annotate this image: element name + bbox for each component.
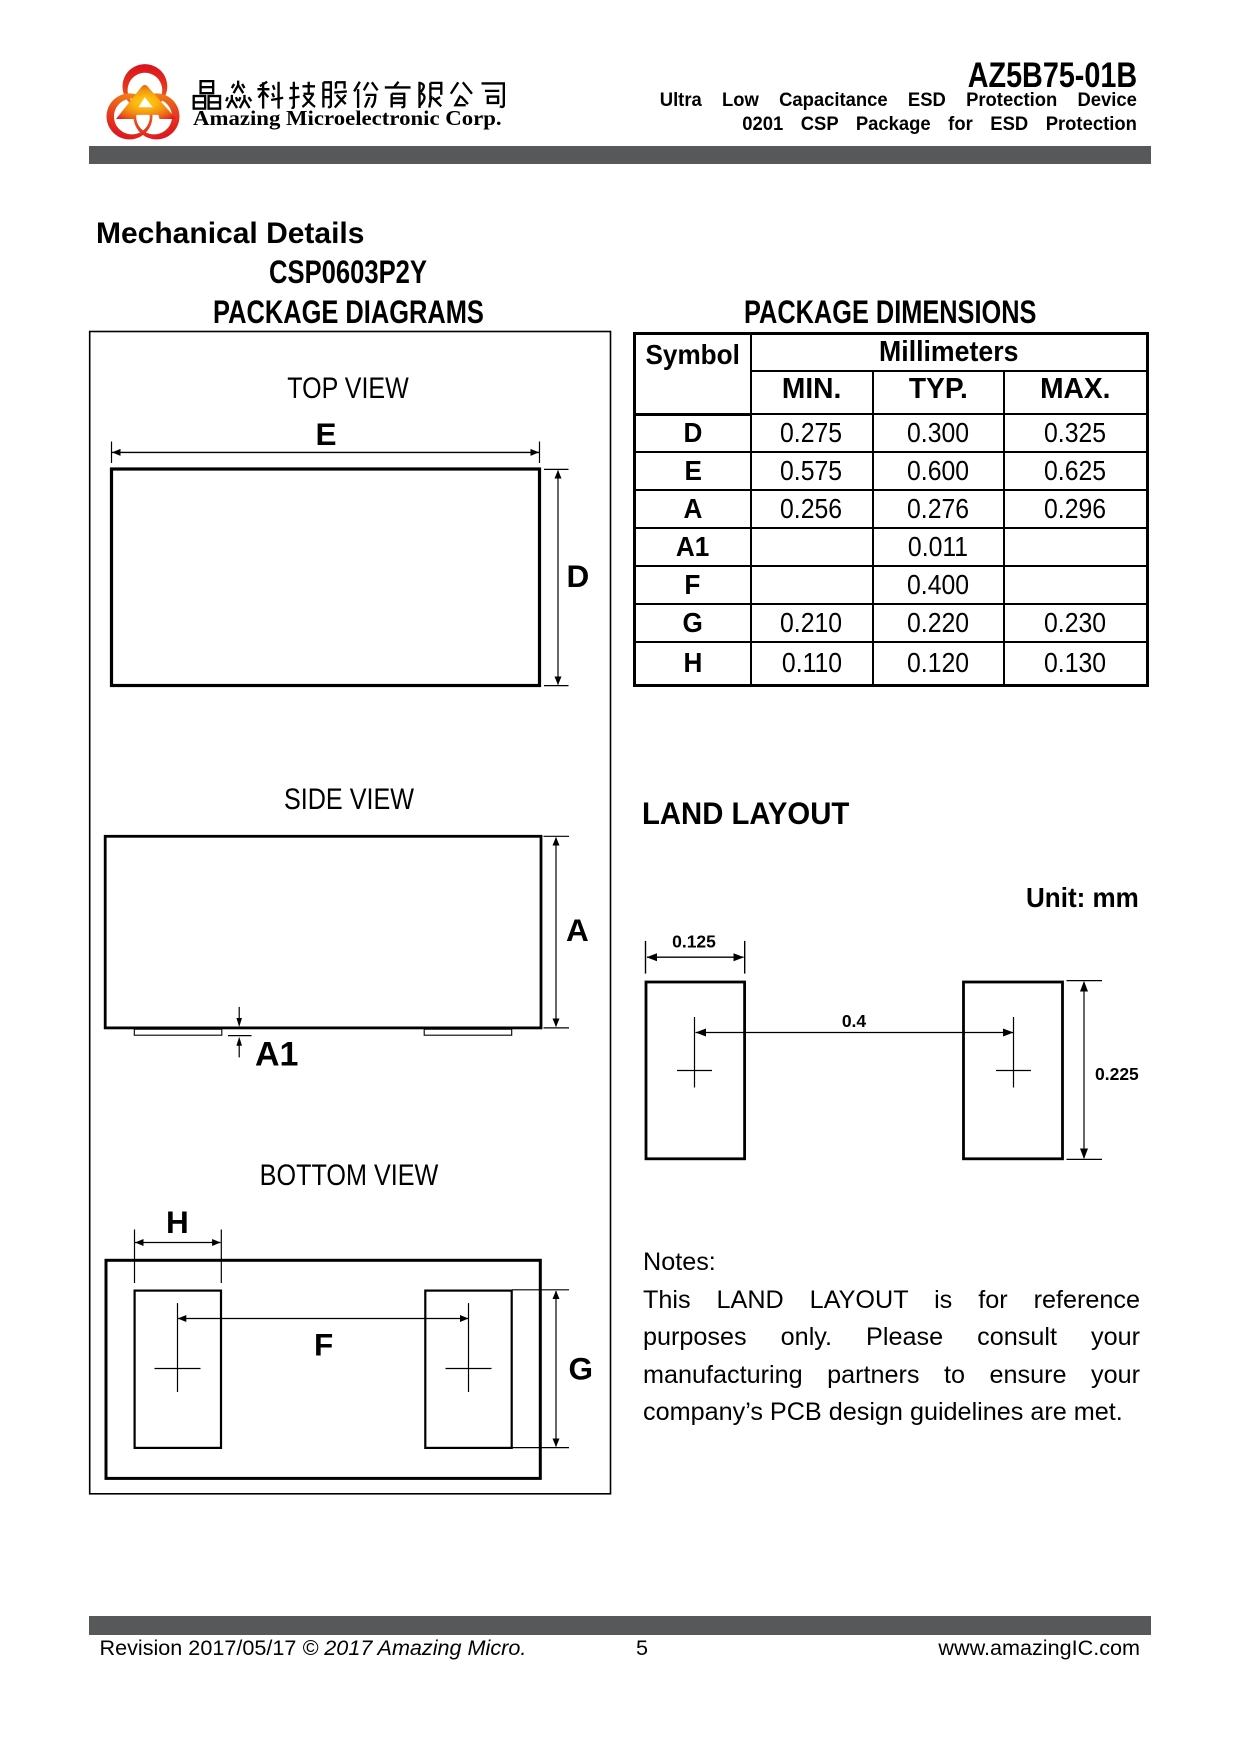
svg-text:TOP VIEW: TOP VIEW <box>287 371 409 404</box>
svg-text:F: F <box>314 1327 333 1363</box>
svg-text:0.225: 0.225 <box>1095 1064 1139 1084</box>
svg-text:SIDE VIEW: SIDE VIEW <box>284 782 414 815</box>
svg-text:H: H <box>166 1204 189 1240</box>
svg-text:A1: A1 <box>255 1035 298 1073</box>
svg-text:0.125: 0.125 <box>672 932 716 952</box>
svg-text:A: A <box>566 912 589 948</box>
svg-text:BOTTOM VIEW: BOTTOM VIEW <box>260 1158 439 1191</box>
svg-text:0.4: 0.4 <box>842 1011 867 1031</box>
svg-text:D: D <box>567 558 590 594</box>
svg-text:G: G <box>569 1351 594 1387</box>
svg-text:E: E <box>315 416 336 452</box>
